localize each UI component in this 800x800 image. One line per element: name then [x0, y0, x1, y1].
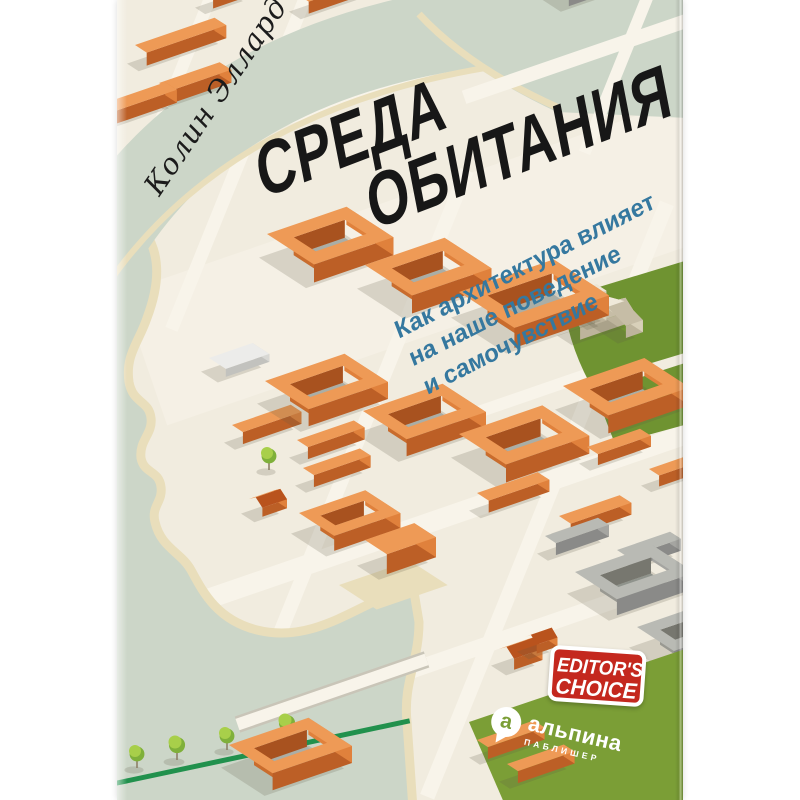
editors-choice-badge: EDITOR'S CHOICE	[547, 645, 647, 708]
book-cover: Колин Эллард СРЕДА ОБИТАНИЯ Как архитект…	[117, 0, 683, 800]
screenshot: Колин Эллард СРЕДА ОБИТАНИЯ Как архитект…	[0, 0, 800, 800]
alpina-pin-icon: a	[488, 704, 524, 740]
badge-line-2: CHOICE	[554, 675, 639, 703]
